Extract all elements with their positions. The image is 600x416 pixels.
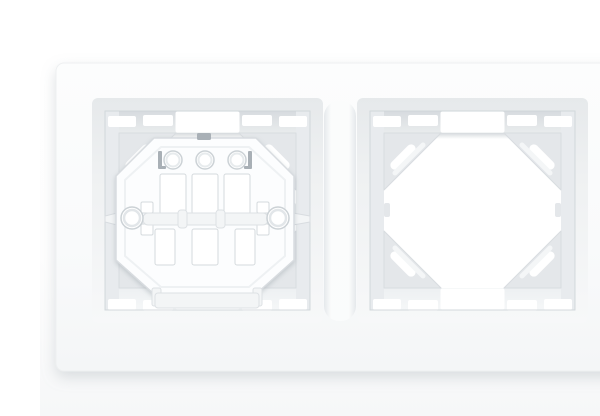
- clip-notch: [108, 116, 136, 127]
- clip-notch: [408, 300, 438, 311]
- wall-right: [296, 111, 310, 310]
- clip-cutout-center-top: [176, 112, 240, 133]
- clip-notch: [544, 299, 572, 310]
- product-photo: [40, 16, 600, 416]
- mounting-slot: [224, 174, 250, 214]
- bottom-flap: [155, 293, 259, 308]
- clip-notch: [544, 116, 572, 127]
- clip-notch: [279, 116, 307, 127]
- clip-notch: [279, 299, 307, 310]
- clip-notch: [108, 299, 136, 310]
- center-divider-post: [324, 101, 356, 321]
- clip-cutout-center-bottom: [441, 289, 505, 310]
- plate-top-notch: [197, 133, 211, 140]
- clip-notch: [143, 115, 173, 126]
- side-tab: [555, 203, 561, 217]
- aperture-right: [357, 98, 588, 323]
- fixing-holes-top: [164, 151, 246, 169]
- side-square-slot: [141, 202, 153, 213]
- cross-bar: [143, 213, 268, 225]
- mounting-slot: [155, 229, 175, 265]
- mounting-slot: [192, 174, 218, 214]
- wall-right: [561, 111, 575, 310]
- wall-plate-photo: [40, 16, 600, 416]
- side-square-slot: [257, 202, 269, 213]
- lower-slots: [155, 229, 255, 265]
- mounting-slot: [160, 174, 186, 214]
- side-tab: [384, 203, 390, 217]
- cross-bar-nub: [216, 210, 225, 228]
- upper-slots: [160, 174, 250, 214]
- clip-notch: [373, 116, 401, 127]
- clip-notch: [507, 115, 537, 126]
- side-square-slot: [257, 224, 269, 235]
- wall-left: [370, 111, 384, 310]
- clip-cutout-center-top: [441, 112, 505, 133]
- cross-bar-nub: [178, 210, 187, 228]
- mounting-slot: [235, 229, 255, 265]
- mounting-slot: [192, 229, 218, 265]
- clip-notch: [242, 115, 272, 126]
- side-square-slot: [141, 224, 153, 235]
- clip-notch: [507, 300, 537, 311]
- clip-notch: [373, 299, 401, 310]
- clip-notch: [408, 115, 438, 126]
